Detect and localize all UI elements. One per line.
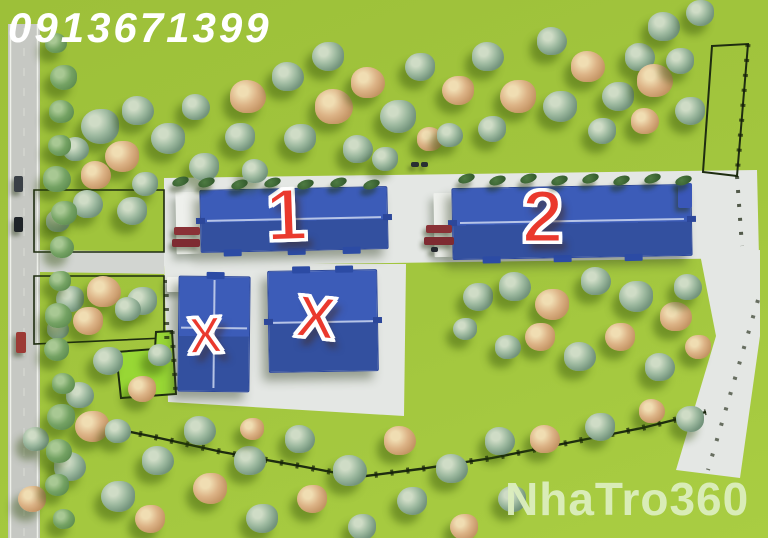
hedge-bush bbox=[488, 174, 507, 188]
hedge-bush bbox=[643, 172, 662, 186]
hedge-bush bbox=[674, 174, 693, 188]
hedge-bush bbox=[581, 172, 600, 186]
hedge-bush bbox=[550, 174, 569, 188]
hedge-bush bbox=[197, 176, 216, 190]
hedge-bush bbox=[296, 178, 315, 192]
bushes-layer bbox=[0, 0, 768, 538]
hedge-bush bbox=[171, 175, 190, 189]
hedge-bush bbox=[230, 178, 249, 192]
hedge-bush bbox=[362, 178, 381, 192]
phone-number-overlay: 0913671399 bbox=[8, 4, 272, 52]
hedge-bush bbox=[263, 176, 282, 190]
hedge-bush bbox=[457, 172, 476, 186]
hedge-bush bbox=[519, 172, 538, 186]
hedge-bush bbox=[612, 174, 631, 188]
aerial-site-render: 1 2 X X 0913671399 NhaTro360 bbox=[0, 0, 768, 538]
hedge-bush bbox=[329, 176, 348, 190]
watermark: NhaTro360 bbox=[505, 472, 749, 526]
